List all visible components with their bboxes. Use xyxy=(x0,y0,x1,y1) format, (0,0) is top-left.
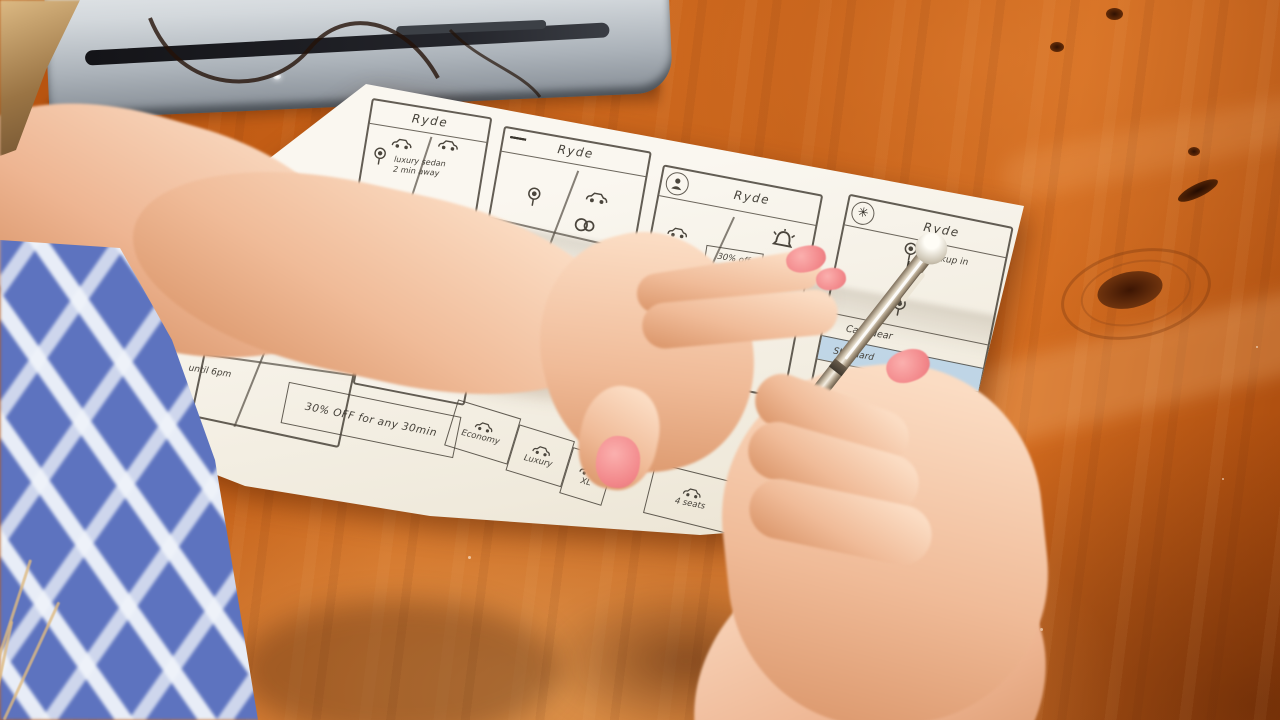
app-title: Ryde xyxy=(684,180,820,214)
map-pin-icon xyxy=(525,185,543,208)
photo-scene: Ryde luxury sedan 2 min away Ryde xyxy=(0,0,1280,720)
panel-header: Ryde xyxy=(502,128,650,177)
app-title: Ryde xyxy=(502,135,649,169)
panel-header: Ryde xyxy=(659,167,821,226)
bell-icon xyxy=(770,226,798,251)
car-icon xyxy=(390,136,414,151)
map-pin-icon xyxy=(371,145,388,167)
car-icon xyxy=(437,137,461,152)
circles-icon xyxy=(573,216,597,236)
app-title: Ryde xyxy=(371,106,490,135)
sketch-note: luxury sedan 2 min away xyxy=(393,155,464,181)
gear-icon: ✳ xyxy=(849,200,876,227)
car-icon xyxy=(584,189,610,206)
